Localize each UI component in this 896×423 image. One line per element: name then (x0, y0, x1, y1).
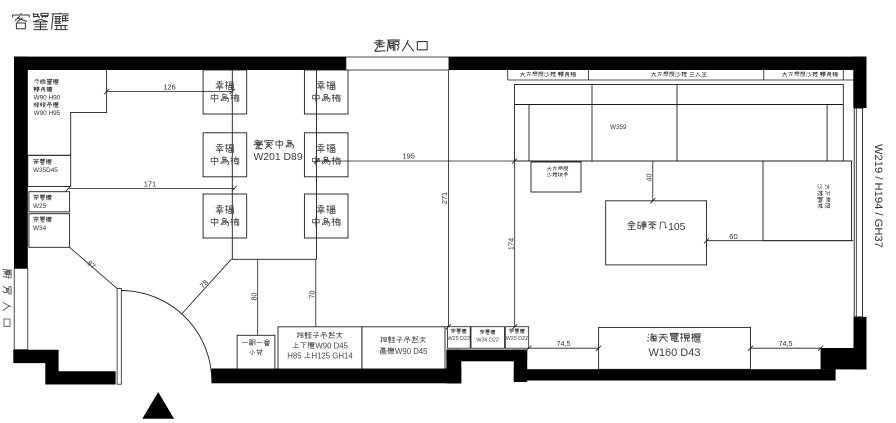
svg-text:126: 126 (163, 83, 176, 92)
svg-text:W359: W359 (610, 124, 627, 131)
svg-text:W219 / H194 / GH37: W219 / H194 / GH37 (872, 144, 884, 248)
svg-text:195: 195 (402, 152, 415, 161)
svg-text:60: 60 (729, 232, 737, 241)
svg-text:70: 70 (308, 290, 317, 298)
svg-text:171: 171 (144, 180, 157, 189)
svg-text:74,5: 74,5 (779, 339, 793, 348)
svg-text:W90 H95: W90 H95 (34, 110, 61, 117)
svg-text:W90 D45: W90 D45 (315, 341, 348, 350)
svg-text:74,5: 74,5 (557, 339, 571, 348)
svg-text:H125 GH14: H125 GH14 (312, 351, 354, 360)
svg-text:174: 174 (507, 238, 516, 251)
svg-text:40: 40 (645, 173, 654, 181)
svg-text:W90 H90: W90 H90 (34, 95, 61, 102)
svg-text:271: 271 (440, 192, 449, 205)
svg-text:W25 D22: W25 D22 (506, 336, 528, 342)
svg-text:105: 105 (668, 222, 686, 233)
svg-text:W160 D43: W160 D43 (649, 347, 701, 359)
svg-text:W25 D22: W25 D22 (448, 336, 470, 342)
svg-text:W25: W25 (33, 203, 47, 210)
svg-text:W36 D22: W36 D22 (476, 338, 498, 344)
svg-text:W90 D45: W90 D45 (395, 347, 428, 356)
svg-text:W201 D89: W201 D89 (254, 152, 303, 163)
svg-text:H85: H85 (287, 351, 302, 360)
svg-text:80: 80 (250, 292, 259, 300)
svg-text:W34: W34 (33, 225, 47, 232)
svg-text:W35D45: W35D45 (33, 167, 58, 174)
